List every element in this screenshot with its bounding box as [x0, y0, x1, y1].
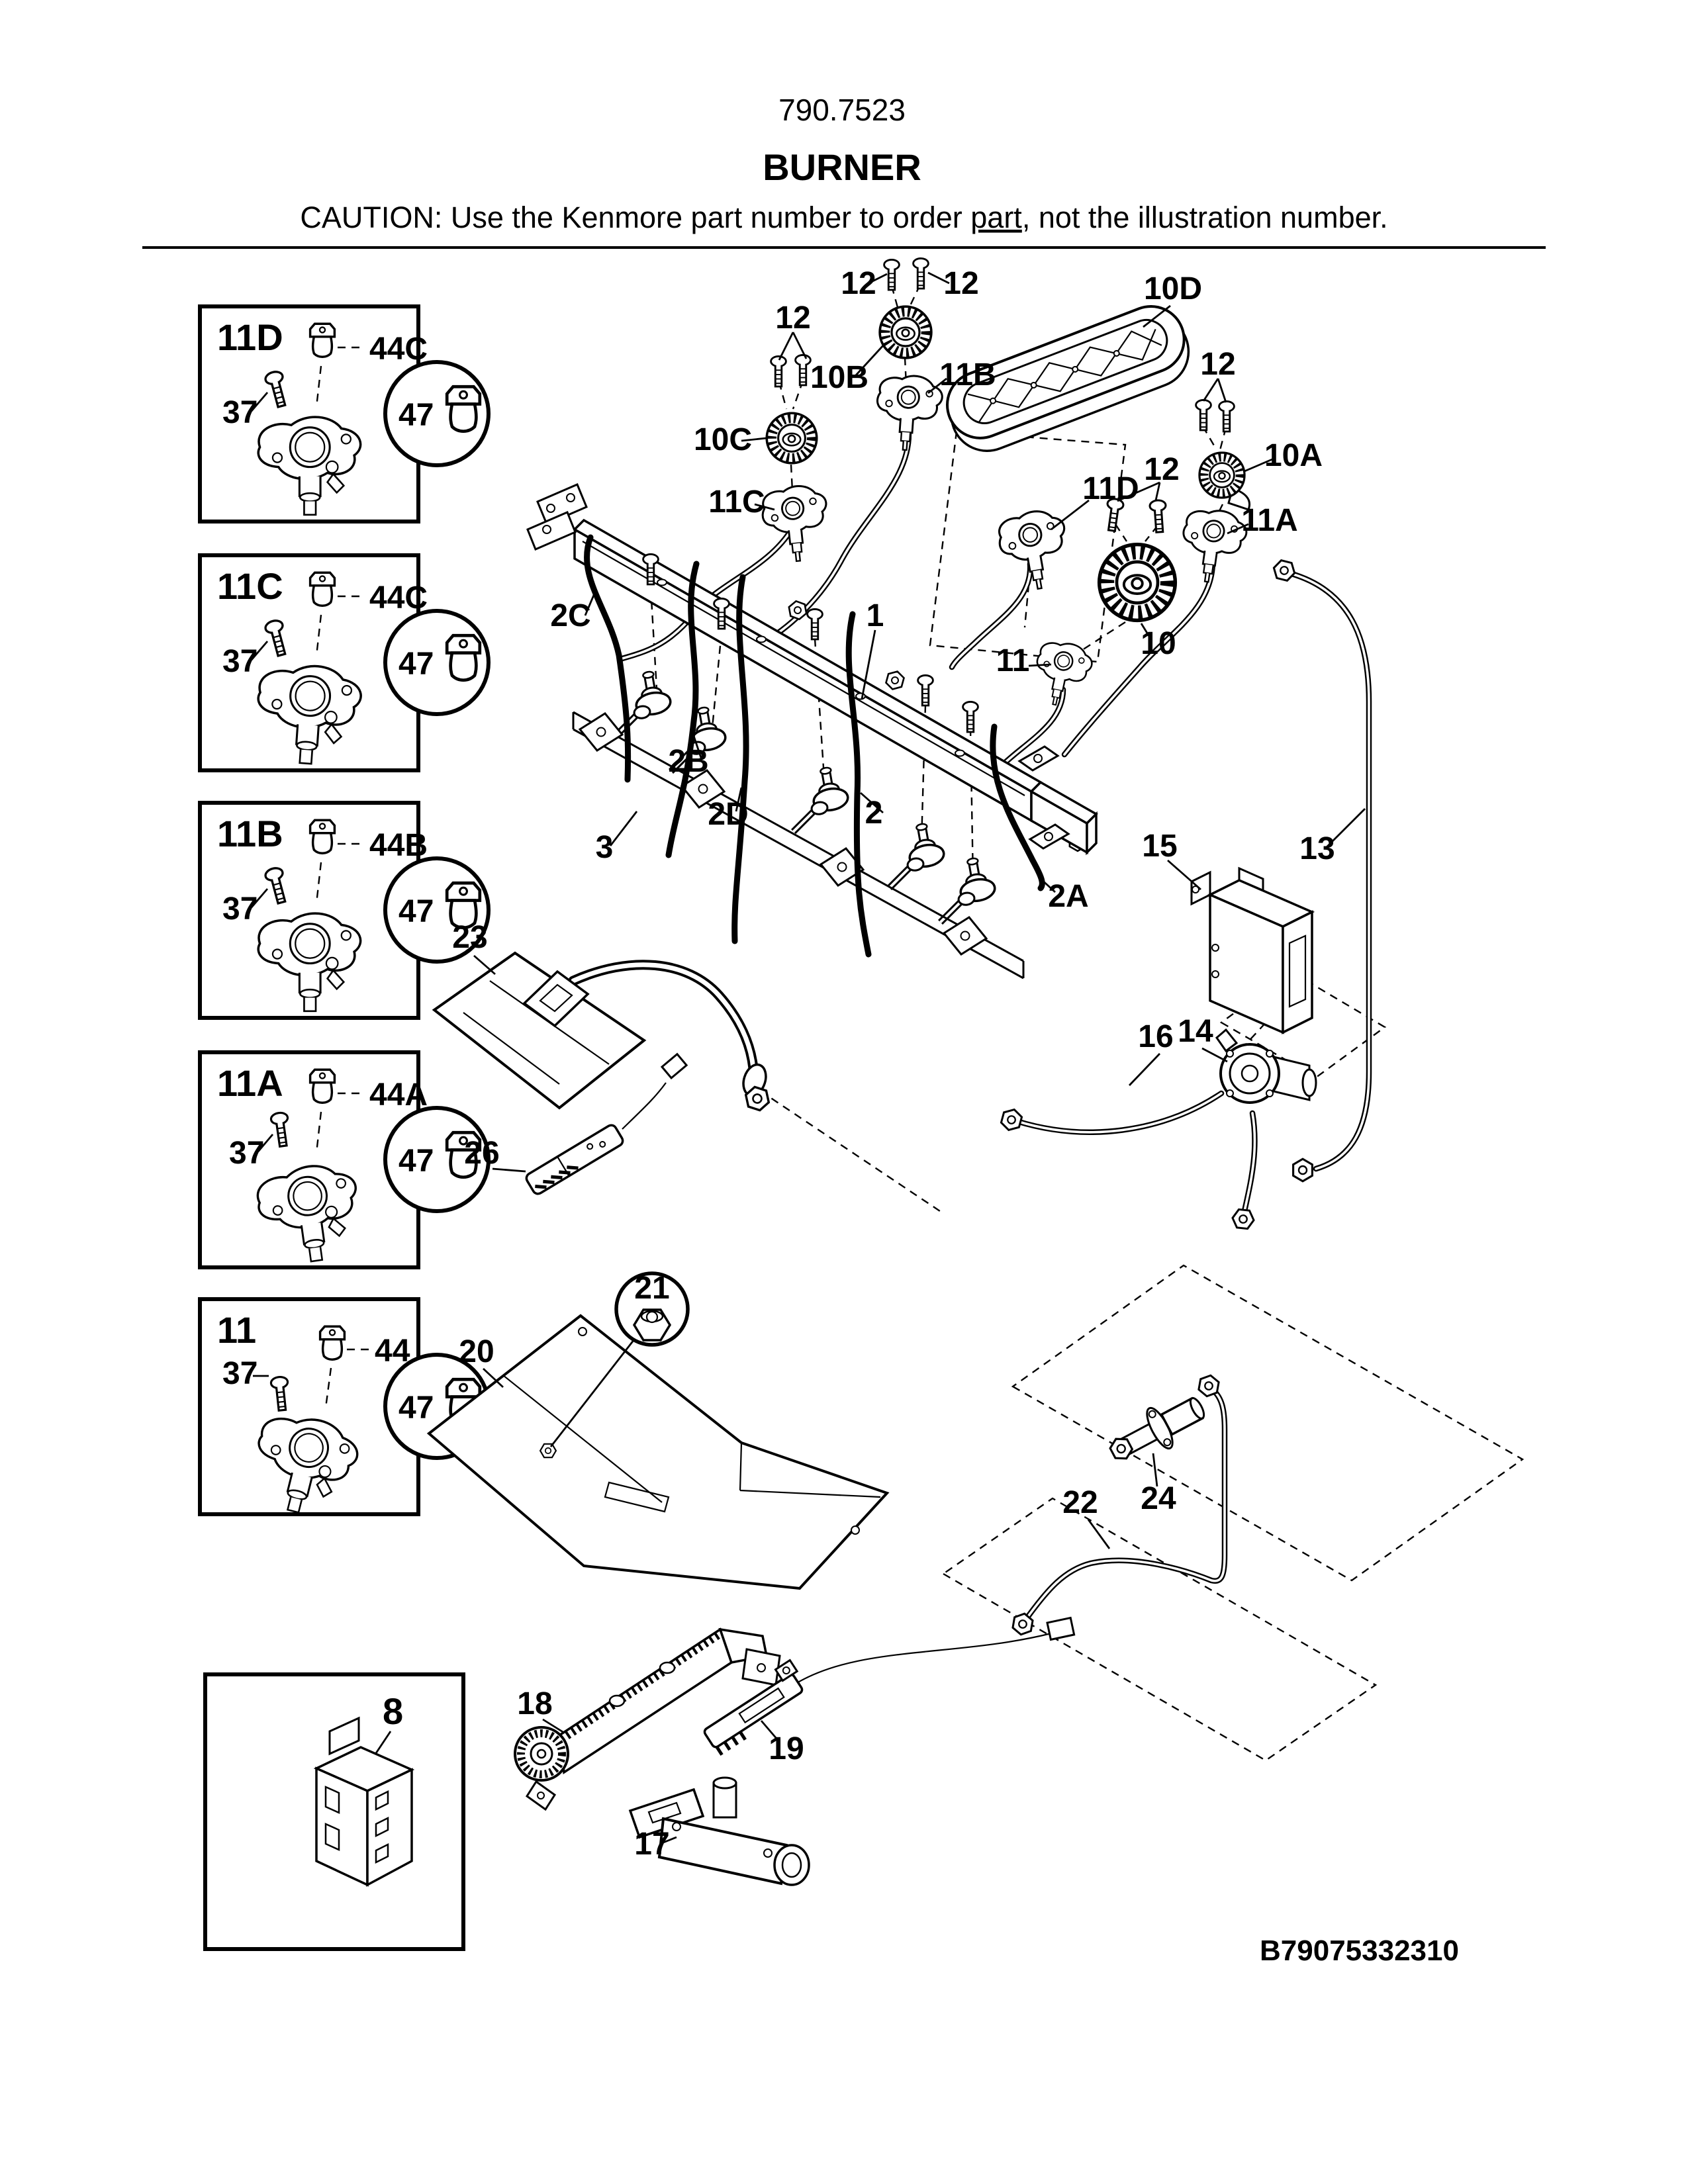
griddle-cover-23: [434, 953, 772, 1112]
callout-20: 20: [459, 1334, 494, 1369]
screw-icon: [271, 1376, 291, 1411]
caution-note: CAUTION: Use the Kenmore part number to …: [300, 201, 1387, 234]
circle-part-label: 47: [399, 398, 434, 433]
callout-2: 2: [865, 796, 883, 831]
pressure-regulator-14: [999, 1030, 1316, 1229]
orifice-spud-icon: [447, 635, 480, 680]
screw-part-label: 37: [222, 1356, 258, 1391]
orifice-holder-11b: [874, 373, 943, 452]
callout-11c: 11C: [708, 484, 765, 520]
screw-icon: [264, 866, 290, 905]
screw-icon: [264, 619, 290, 657]
callout-23: 23: [452, 920, 487, 955]
orifice-holder-drawing: [254, 1160, 365, 1267]
detail-box-label: 11C: [217, 565, 283, 607]
callout-10a: 10A: [1264, 438, 1323, 473]
orifice-holder-drawing: [258, 913, 360, 1011]
screw-part-label: 37: [229, 1136, 264, 1171]
callout-11a: 11A: [1241, 503, 1297, 538]
callout-22: 22: [1062, 1485, 1098, 1520]
valve-grommet-icon: [310, 324, 335, 357]
callout-11d: 11D: [1082, 471, 1139, 506]
callout-15: 15: [1142, 829, 1177, 864]
valve-part-label: 44B: [369, 828, 428, 863]
circle-part-label: 47: [399, 1144, 434, 1179]
callout-12: 12: [775, 300, 810, 336]
orifice-holder-drawing: [245, 1408, 363, 1523]
valve-part-label: 44A: [369, 1077, 428, 1113]
callout-10: 10: [1141, 626, 1176, 661]
callout-10c: 10C: [694, 422, 752, 457]
tube-fitting-nut: [786, 600, 810, 621]
valve-grommet-icon: [310, 1069, 335, 1103]
screw-icon: [270, 1112, 291, 1147]
callout-12: 12: [943, 266, 978, 301]
callout-10b: 10B: [810, 360, 868, 395]
callout-19: 19: [769, 1731, 804, 1766]
circle-part-label: 47: [399, 1390, 434, 1426]
callout-10d: 10D: [1144, 271, 1202, 306]
diagram-code: B79075332310: [1260, 1934, 1459, 1967]
valve-part-label: 44C: [369, 580, 428, 615]
screw-part-label: 37: [222, 891, 258, 927]
callout-16: 16: [1138, 1019, 1173, 1054]
burner-head-10b: [880, 306, 931, 358]
valve-grommet-icon: [310, 572, 335, 606]
orifice-spud-icon: [447, 387, 480, 431]
callout-11b: 11B: [939, 357, 996, 392]
spark-module-15: [1192, 868, 1312, 1032]
connector-part-label: 8: [383, 1690, 403, 1732]
callout-24: 24: [1141, 1481, 1176, 1516]
detail-box-11c: 11C 44C 37 47: [200, 555, 489, 770]
callout-14: 14: [1178, 1014, 1213, 1049]
callout-26: 26: [464, 1136, 499, 1171]
orifice-holder-drawing: [258, 417, 360, 515]
callout-13: 13: [1299, 831, 1335, 866]
burner-head-10: [1100, 545, 1176, 621]
valve-grommet-icon: [320, 1326, 345, 1359]
nut-detail-label: 21: [634, 1271, 669, 1306]
callout-17: 17: [634, 1827, 669, 1862]
callout-12: 12: [1200, 347, 1235, 382]
orifice-holder-24: [1102, 1387, 1212, 1473]
bottom-panel-20: [429, 1316, 887, 1588]
detail-box-11a: 11A 44A 37 47: [200, 1052, 489, 1267]
tube-fitting-nut: [884, 670, 906, 690]
callout-2b: 2B: [668, 744, 708, 779]
callout-18: 18: [517, 1686, 552, 1721]
detail-box-11: 11 44 37 47: [200, 1299, 489, 1523]
screw-icon: [264, 370, 290, 408]
detail-box-label: 11D: [217, 316, 283, 358]
burner-exploded-diagram: 790.7523 BURNER CAUTION: Use the Kenmore…: [0, 0, 1688, 2184]
page-header: 790.7523 BURNER CAUTION: Use the Kenmore…: [142, 93, 1546, 248]
valve-part-label: 44C: [369, 332, 428, 367]
connector-drawing: [316, 1718, 412, 1885]
callout-11: 11: [996, 643, 1030, 678]
detail-box-label: 11A: [217, 1062, 283, 1104]
callout-12: 12: [1144, 452, 1179, 487]
detail-box-label: 11: [217, 1309, 256, 1351]
screw-part-label: 37: [222, 395, 258, 430]
orifice-holder-drawing: [254, 662, 363, 767]
parts-diagram-page: 790.7523 BURNER CAUTION: Use the Kenmore…: [0, 0, 1688, 2184]
manifold-valves: [606, 669, 1000, 923]
circle-part-label: 47: [399, 894, 434, 929]
detail-box-label: 11B: [217, 813, 283, 854]
callout-12: 12: [841, 266, 876, 301]
detail-box-11d: 11D 44C 37 47: [200, 306, 489, 522]
callout-2c: 2C: [550, 598, 590, 633]
circle-part-label: 47: [399, 647, 434, 682]
callout-3: 3: [596, 830, 614, 865]
callout-2d: 2D: [708, 797, 748, 832]
burner-head-10c: [767, 413, 816, 463]
callout-1: 1: [867, 598, 884, 633]
model-number: 790.7523: [778, 93, 906, 127]
connector-box-8: 8: [205, 1674, 463, 1949]
callout-2a: 2A: [1048, 879, 1088, 914]
burner-head-10a: [1199, 453, 1250, 510]
page-title: BURNER: [763, 146, 921, 188]
valve-grommet-icon: [310, 820, 335, 853]
screw-part-label: 37: [222, 644, 258, 679]
detail-box-11b: 11B 44B 37 47: [200, 803, 489, 1018]
